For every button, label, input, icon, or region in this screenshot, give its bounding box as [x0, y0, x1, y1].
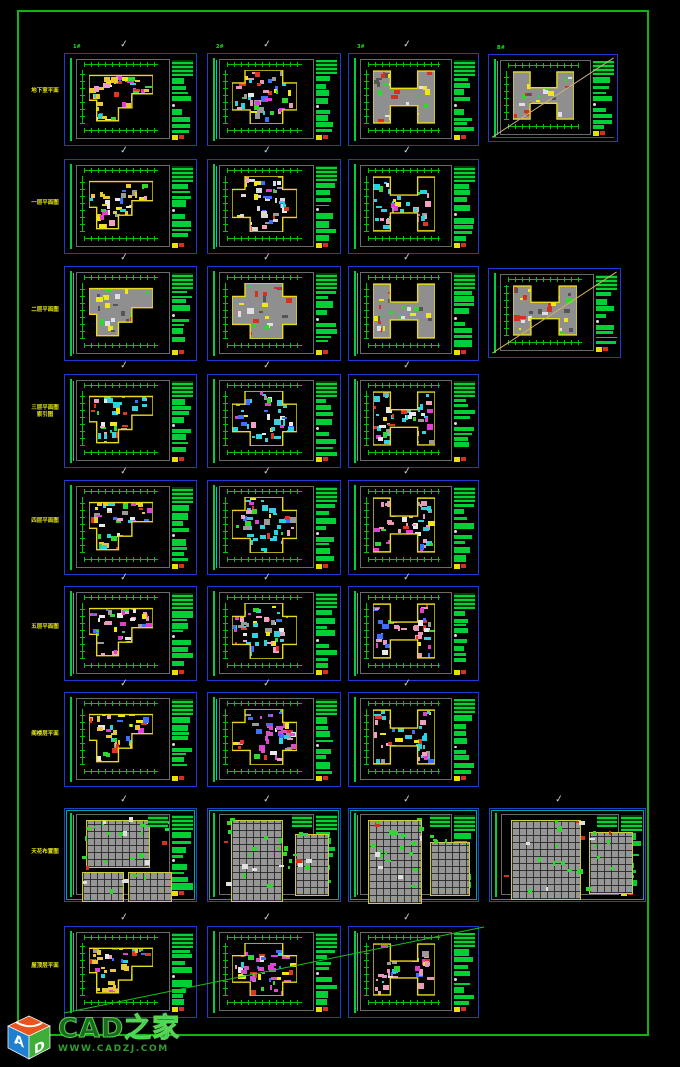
detail-annotation [289, 859, 292, 863]
dimension-line [223, 497, 228, 553]
sheet-r4c1[interactable] [64, 374, 197, 468]
dimension-line [84, 383, 158, 388]
title-block-text [316, 183, 335, 188]
title-block-footer [593, 131, 605, 136]
title-block-stamp [316, 532, 319, 535]
title-block-text [172, 832, 191, 839]
title-block [172, 273, 193, 355]
frame-left-bar [494, 59, 496, 137]
title-block-text [454, 437, 468, 440]
title-block-text [593, 86, 609, 90]
title-block-text [172, 92, 188, 95]
title-block-text [454, 547, 470, 553]
title-block [172, 933, 193, 1012]
revision-checkmark: ✓ [263, 794, 273, 805]
title-block-footer [172, 135, 184, 140]
title-block-stamp [172, 743, 175, 746]
footer-red-mark [323, 1007, 328, 1011]
title-block-header [316, 699, 337, 715]
detail-annotation [504, 875, 509, 877]
title-block-stamp [454, 746, 457, 749]
sheet-r6c3[interactable] [348, 586, 479, 681]
floor-plan [232, 709, 297, 765]
footer-red-mark [461, 135, 466, 139]
title-block-text [454, 122, 467, 124]
revision-checkmark: ✓ [119, 360, 129, 371]
sheet-r1c3[interactable] [348, 53, 479, 146]
title-block-footer [172, 564, 184, 569]
floor-plan [513, 285, 577, 336]
title-block-footer [454, 776, 466, 781]
detail-annotation [284, 846, 287, 850]
footer-red-mark [179, 1007, 184, 1011]
dimension-line [368, 343, 440, 348]
title-block-stamp [454, 422, 457, 425]
detail-annotation [122, 880, 124, 884]
title-block [172, 487, 193, 569]
title-block-header [593, 61, 614, 75]
floor-plan [232, 70, 297, 124]
sheet-r7c2[interactable] [207, 692, 341, 787]
title-block-text [454, 523, 474, 529]
title-block-text [172, 757, 184, 761]
sheet-r5c2[interactable] [207, 480, 341, 575]
footer-yellow-mark [316, 564, 322, 569]
title-block-text [596, 341, 616, 344]
title-block-text [316, 991, 328, 997]
title-block-header [172, 381, 193, 397]
revision-checkmark: ✓ [119, 252, 129, 263]
sheet-r9c2[interactable] [207, 926, 341, 1018]
title-block-text [593, 125, 604, 129]
sheet-r6c2[interactable] [207, 586, 341, 681]
title-block-text [454, 399, 466, 402]
title-block-header [172, 815, 193, 830]
title-block-header [316, 166, 337, 181]
title-block-footer [454, 564, 466, 569]
sheet-r8c2[interactable] [207, 808, 341, 902]
footer-yellow-mark [172, 891, 178, 896]
title-block-text [316, 731, 330, 737]
footer-red-mark [461, 1007, 466, 1011]
floor-plan [373, 176, 435, 232]
title-block-text [172, 619, 187, 621]
title-block-stamp [316, 427, 319, 430]
dimension-line [80, 391, 85, 446]
sheet-r1c1[interactable] [64, 53, 197, 146]
title-block-text [316, 296, 328, 299]
row-label-1: 地下室平面 [28, 88, 62, 95]
detail-annotation [380, 854, 383, 859]
revision-checkmark: ✓ [263, 39, 273, 50]
title-block-text [454, 97, 470, 102]
title-block [454, 487, 475, 569]
footer-red-mark [179, 564, 184, 568]
sheet-number-label: 2# [216, 45, 224, 50]
wall-outline [89, 391, 153, 446]
footer-yellow-mark [316, 670, 322, 675]
footer-red-mark [461, 776, 466, 780]
frame-left-bar [354, 485, 356, 570]
title-block-text [454, 236, 466, 241]
title-block-text [172, 872, 184, 874]
sheet-r5c3[interactable] [348, 480, 479, 575]
title-block-text [172, 539, 186, 545]
sheet-r9c3[interactable] [348, 926, 479, 1018]
ceiling-panel [589, 832, 633, 894]
title-block [316, 487, 337, 569]
frame-left-bar2 [216, 487, 217, 568]
sheet-r8c3[interactable] [348, 808, 479, 902]
frame-left-bar [213, 379, 215, 463]
sheet-r1c4[interactable] [488, 54, 618, 142]
title-block-text [172, 883, 193, 889]
sheet-number-label: 1# [73, 45, 81, 50]
sheet-r3c4[interactable] [488, 268, 621, 358]
title-block-text [316, 412, 333, 416]
sheet-r3c1[interactable] [64, 266, 197, 361]
frame-left-bar2 [357, 933, 358, 1011]
title-block-header [621, 815, 642, 831]
dimension-line [80, 603, 85, 659]
title-block-text [316, 76, 330, 81]
detail-annotation [83, 881, 87, 884]
detail-annotation [279, 865, 284, 867]
title-block-text [454, 504, 474, 507]
logo-title: CAD之家 [58, 1014, 180, 1044]
detail-annotation [306, 859, 312, 863]
dimension-line [368, 450, 440, 455]
sheet-r2c2[interactable] [207, 159, 341, 254]
detail-annotation [107, 832, 111, 835]
detail-annotation [595, 844, 598, 848]
dimension-line [368, 383, 440, 388]
title-block-text [316, 771, 332, 774]
title-block-text [454, 987, 464, 993]
revision-checkmark: ✓ [263, 912, 273, 923]
floor-plan [89, 709, 153, 765]
title-block-text [172, 647, 188, 652]
title-block-text [316, 329, 337, 335]
title-block-footer [172, 670, 184, 675]
title-block-header [172, 487, 193, 503]
title-block-text [316, 726, 328, 729]
row-label-8: 天花布置图 [28, 849, 62, 856]
title-block-text [454, 218, 474, 224]
dimension-line [368, 62, 440, 67]
title-block-text [316, 340, 328, 343]
title-block-header [172, 60, 193, 76]
title-block-text [316, 229, 336, 233]
footer-yellow-mark [316, 243, 322, 248]
sheet-r7c3[interactable] [348, 692, 479, 787]
title-block-stamp [454, 530, 457, 533]
floor-plan [232, 283, 297, 339]
title-block [316, 273, 337, 355]
title-block-text [172, 328, 183, 334]
title-block-stamp [172, 424, 175, 427]
sheet-number-label: 3# [357, 45, 365, 50]
title-block-text [316, 967, 329, 970]
detail-legend [430, 815, 450, 827]
dimension-line [368, 128, 440, 133]
footer-red-mark [603, 347, 608, 351]
detail-annotation [589, 838, 595, 841]
sheet-r4c2[interactable] [207, 374, 341, 468]
detail-annotation [230, 818, 235, 821]
revision-checkmark: ✓ [263, 252, 273, 263]
footer-red-mark [179, 457, 184, 461]
detail-annotation [371, 844, 376, 848]
footer-yellow-mark [172, 135, 178, 140]
detail-annotation [579, 821, 585, 825]
title-block-text [454, 957, 473, 963]
title-block-text [316, 452, 337, 456]
revision-checkmark: ✓ [402, 678, 412, 689]
detail-annotation [420, 836, 423, 840]
title-block [454, 699, 475, 781]
title-block-text [172, 623, 188, 629]
footer-yellow-mark [172, 243, 178, 248]
title-block-text [316, 291, 336, 294]
dimension-line [223, 176, 228, 232]
sheet-r6c1[interactable] [64, 586, 197, 681]
title-block-text [316, 447, 333, 450]
frame-left-bar [354, 813, 356, 897]
row-label-7: 阁楼层平面 [28, 731, 62, 738]
wall-outline [232, 943, 297, 996]
detail-annotation [378, 866, 383, 868]
title-block-footer [316, 776, 328, 781]
detail-annotation [593, 831, 596, 835]
title-block-text [454, 1001, 469, 1005]
title-block-text [316, 190, 330, 195]
title-block-text [172, 877, 188, 882]
title-block-text [454, 770, 471, 774]
dimension-line [84, 1000, 158, 1005]
wall-outline [232, 70, 297, 124]
cad-drawing-area[interactable]: 地下室平面一层平面图二层平面图三层平面图 索引图四层平面图五层平面图阁楼层平面天… [0, 0, 680, 1067]
frame-left-bar [354, 164, 356, 249]
sheet-r9c1[interactable] [64, 926, 197, 1018]
title-block-footer [316, 564, 328, 569]
detail-annotation [577, 869, 583, 874]
title-block-header [172, 933, 193, 948]
sheet-r3c2[interactable] [207, 266, 341, 361]
title-block-text [172, 653, 193, 658]
title-block-text [316, 221, 329, 227]
title-block-stamp [593, 103, 596, 106]
footer-red-mark [179, 135, 184, 139]
revision-checkmark: ✓ [402, 794, 412, 805]
title-block-text [172, 717, 190, 723]
dimension-line [227, 489, 302, 494]
revision-checkmark: ✓ [402, 466, 412, 477]
sheet-r5c1[interactable] [64, 480, 197, 575]
dimension-line [364, 391, 369, 446]
dimension-line [84, 275, 158, 280]
title-block-text [316, 98, 328, 104]
detail-annotation [227, 821, 231, 825]
frame-left-bar [354, 697, 356, 782]
footer-red-mark [179, 891, 184, 895]
title-block-footer [454, 670, 466, 675]
dimension-line [227, 450, 302, 455]
row-label-6: 五层平面图 [28, 624, 62, 631]
footer-yellow-mark [454, 670, 460, 675]
dimension-line [368, 663, 440, 668]
detail-annotation [538, 857, 542, 861]
dimension-line [80, 709, 85, 765]
title-block-text [454, 763, 474, 768]
footer-red-mark [600, 131, 605, 135]
sheet-r8c1[interactable] [64, 808, 197, 902]
title-block [593, 61, 614, 136]
title-block-text [316, 999, 327, 1005]
frame-left-bar [213, 164, 215, 249]
title-block-text [454, 78, 468, 81]
title-block-text [316, 610, 332, 615]
sheet-r4c3[interactable] [348, 374, 479, 468]
detail-annotation [242, 864, 248, 869]
dimension-line [368, 275, 440, 280]
frame-left-bar2 [357, 593, 358, 674]
dimension-line [227, 935, 302, 940]
footer-yellow-mark [316, 457, 322, 462]
title-block-text [316, 740, 333, 742]
title-block [172, 593, 193, 675]
title-block [316, 699, 337, 781]
title-block-stamp [316, 105, 319, 108]
footer-yellow-mark [172, 350, 178, 355]
title-block-text [316, 511, 329, 516]
wall-outline [89, 283, 153, 339]
sheet-r1c2[interactable] [207, 53, 341, 146]
frame-left-bar2 [216, 60, 217, 139]
detail-annotation [555, 845, 557, 848]
dimension-line [84, 62, 158, 67]
dimension-line [223, 603, 228, 659]
dimension-line [227, 595, 302, 600]
title-block-text [454, 335, 472, 337]
frame-left-bar [213, 271, 215, 356]
title-block-header [454, 166, 475, 182]
frame-left-bar [70, 58, 72, 141]
sheet-bottom-line [492, 137, 614, 138]
title-block-text [316, 658, 328, 661]
logo-url: WWW.CADZJ.COM [58, 1044, 180, 1054]
wall-outline [373, 391, 435, 446]
title-block-text [172, 994, 183, 998]
wall-outline [89, 497, 153, 553]
title-block [454, 166, 475, 248]
title-block-stamp [172, 314, 175, 317]
revision-checkmark: ✓ [119, 678, 129, 689]
detail-annotation [303, 833, 308, 836]
dimension-line [364, 283, 369, 339]
revision-checkmark: ✓ [263, 360, 273, 371]
wall-outline [373, 497, 435, 553]
title-block-text [454, 624, 466, 626]
title-block-footer [454, 243, 466, 248]
title-block-text [596, 337, 617, 339]
title-block-text [316, 518, 336, 524]
title-block-text [316, 663, 328, 668]
title-block-text [172, 528, 189, 532]
frame-left-bar [354, 931, 356, 1013]
title-block-text [596, 299, 607, 305]
title-block-text [172, 429, 191, 433]
wall-outline [232, 603, 297, 659]
title-block [454, 593, 475, 675]
title-block-text [454, 995, 474, 998]
detail-annotation [288, 866, 290, 870]
dimension-line [80, 943, 85, 996]
title-block-text [454, 197, 467, 201]
detail-annotation [130, 858, 135, 860]
title-block-text [316, 962, 331, 965]
footer-red-mark [179, 670, 184, 674]
footer-red-mark [323, 670, 328, 674]
title-block-text [454, 965, 468, 969]
sheet-r2c1[interactable] [64, 159, 197, 254]
footer-yellow-mark [172, 457, 178, 462]
title-block-text [593, 96, 612, 101]
title-block-stamp [316, 972, 319, 975]
dimension-line [84, 769, 158, 774]
dimension-line [227, 1000, 302, 1005]
title-block-text [454, 750, 466, 754]
sheet-r8c4[interactable] [489, 808, 646, 902]
detail-annotation [417, 818, 422, 821]
dimension-line [84, 663, 158, 668]
wall-outline [373, 176, 435, 232]
title-block-text [593, 92, 606, 94]
detail-annotation [376, 821, 379, 824]
detail-annotation [162, 841, 167, 844]
sheet-r2c3[interactable] [348, 159, 479, 254]
title-block-text [596, 325, 614, 330]
title-block-text [172, 661, 184, 666]
title-block-text [316, 644, 329, 648]
title-block-text [172, 950, 190, 952]
revision-checkmark: ✓ [263, 678, 273, 689]
title-block-header [454, 593, 475, 609]
dimension-line [84, 128, 158, 133]
detail-annotation [243, 873, 247, 878]
sheet-r7c1[interactable] [64, 692, 197, 787]
footer-yellow-mark [172, 564, 178, 569]
detail-annotation [252, 847, 257, 852]
detail-annotation [392, 831, 398, 835]
dimension-line [84, 701, 158, 706]
title-block-text [454, 83, 470, 88]
title-block-text [454, 442, 469, 446]
floor-plan [89, 391, 153, 446]
title-block-text [316, 950, 335, 954]
detail-legend [292, 815, 312, 827]
footer-yellow-mark [454, 135, 460, 140]
detail-annotation [228, 830, 231, 835]
wall-outline [89, 943, 153, 996]
title-block-text [593, 77, 610, 83]
title-block [454, 381, 475, 462]
dimension-line [227, 343, 302, 348]
title-block-stamp [172, 635, 175, 638]
floor-plan [89, 497, 153, 553]
sheet-r3c3[interactable] [348, 266, 479, 361]
title-block-text [172, 86, 186, 90]
